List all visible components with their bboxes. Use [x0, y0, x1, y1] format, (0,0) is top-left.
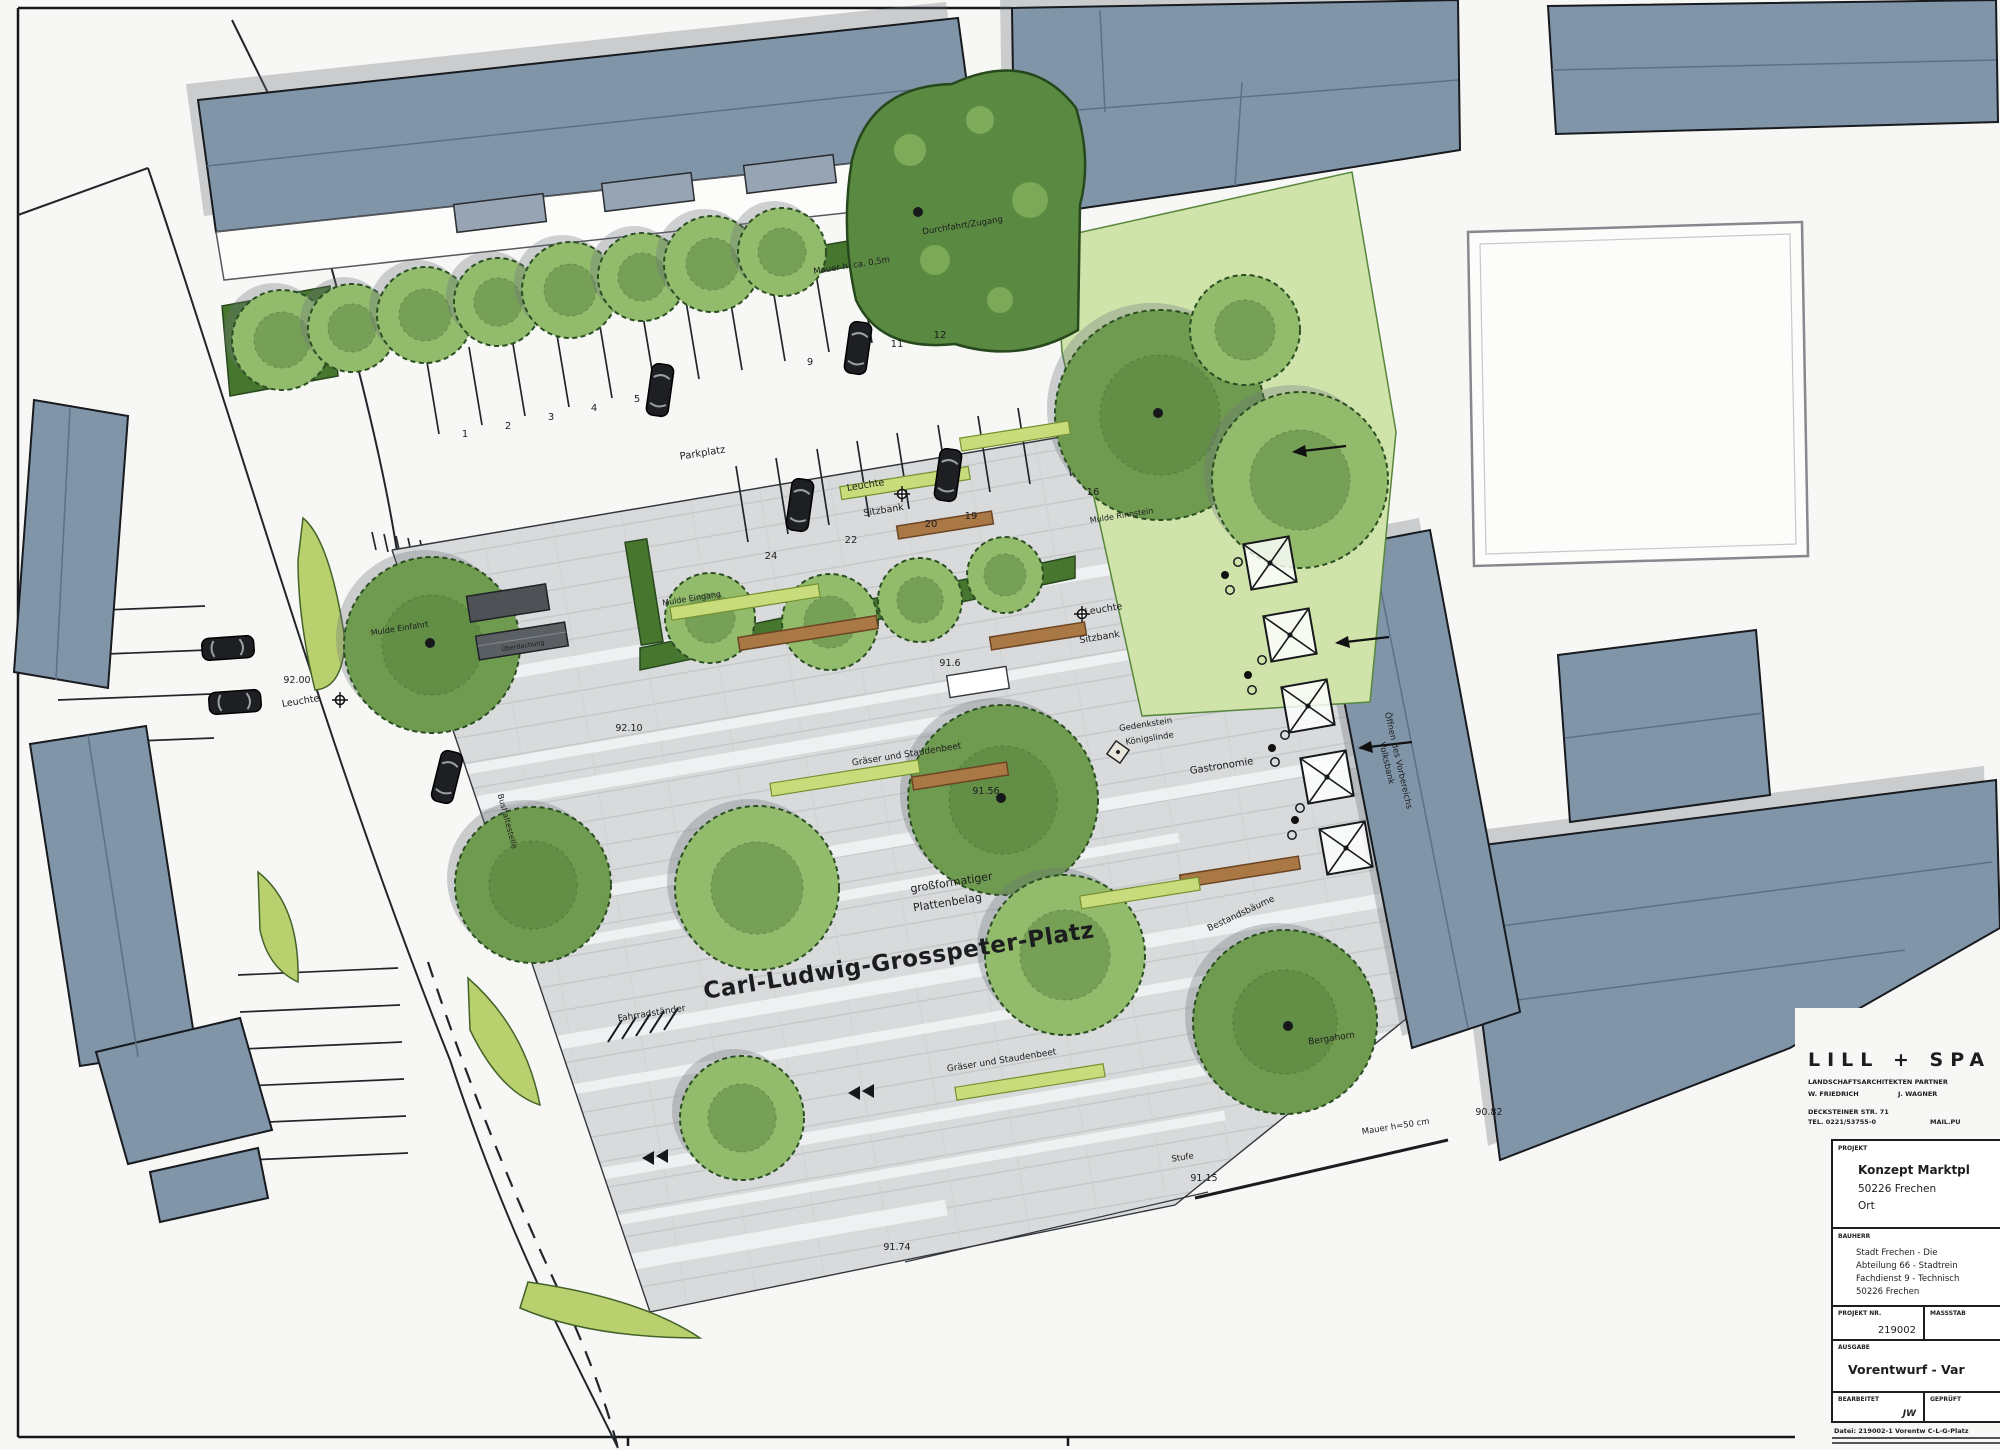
checked-header: GEPRÜFT — [1930, 1396, 1962, 1403]
project-line3: Ort — [1858, 1200, 1875, 1212]
elev-9115: 91.15 — [1190, 1173, 1217, 1184]
file-note: Datei: 219002-1 Vorentw C-L-G-Platz — [1834, 1427, 1969, 1435]
elev-9174: 91.74 — [883, 1242, 910, 1253]
client-line3: Fachdienst 9 - Technisch — [1856, 1274, 1959, 1284]
project-city: 50226 Frechen — [1858, 1183, 1936, 1195]
issue-value: Vorentwurf - Var — [1848, 1362, 1965, 1377]
project-name: Konzept Marktpl — [1858, 1163, 1970, 1177]
partner-left: W. FRIEDRICH — [1808, 1090, 1859, 1098]
drawn-header: BEARBEITET — [1838, 1396, 1880, 1403]
forest-mass — [847, 71, 1085, 352]
svg-text:2: 2 — [505, 421, 511, 432]
svg-text:16: 16 — [1087, 487, 1100, 498]
elev-9200: 92.00 — [283, 675, 310, 686]
building-top-far-right — [1548, 0, 1998, 134]
svg-text:22: 22 — [845, 535, 858, 546]
building-white-right — [1468, 222, 1808, 566]
partner-right: J. WAGNER — [1897, 1090, 1937, 1098]
client-line2: Abteilung 66 - Stadtrein — [1856, 1261, 1958, 1271]
svg-text:9: 9 — [807, 357, 813, 368]
elev-9156: 91.56 — [972, 786, 999, 797]
project-header: PROJEKT — [1838, 1145, 1868, 1152]
svg-text:24: 24 — [765, 551, 778, 562]
elev-9210: 92.10 — [615, 723, 642, 734]
drawn-value: JW — [1901, 1409, 1917, 1419]
svg-text:4: 4 — [591, 403, 597, 414]
svg-text:20: 20 — [925, 519, 938, 530]
svg-text:12: 12 — [934, 330, 947, 341]
scale-header: MASSSTAB — [1930, 1310, 1966, 1317]
projectno-value: 219002 — [1878, 1325, 1916, 1336]
svg-text:19: 19 — [965, 511, 978, 522]
projectno-header: PROJEKT NR. — [1838, 1310, 1881, 1317]
svg-text:11: 11 — [891, 339, 904, 350]
client-line1: Stadt Frechen - Die — [1856, 1248, 1937, 1258]
tree-trunk-dot — [913, 207, 923, 217]
elev-9082: 90.82 — [1475, 1107, 1502, 1118]
firm-type: LANDSCHAFTSARCHITEKTEN PARTNER — [1808, 1078, 1948, 1086]
elev-9160: 91.6 — [939, 658, 960, 669]
issue-header: AUSGABE — [1838, 1344, 1870, 1351]
firm-name: LILL + SPA — [1808, 1049, 1991, 1071]
client-header: BAUHERR — [1838, 1233, 1871, 1240]
firm-address: DECKSTEINER STR. 71 — [1808, 1108, 1889, 1116]
client-line4: 50226 Frechen — [1856, 1287, 1919, 1297]
site-plan-sheet: Balkon Öffnen des Vorbereichs Volksbank — [0, 0, 2000, 1450]
site-plan-drawing: Balkon Öffnen des Vorbereichs Volksbank — [0, 0, 2000, 1450]
firm-mail-fragment: MAIL.PU — [1930, 1118, 1961, 1126]
svg-text:5: 5 — [634, 394, 640, 405]
svg-text:3: 3 — [548, 412, 554, 423]
svg-text:1: 1 — [462, 429, 468, 440]
firm-phone: TEL. 0221/53755-0 — [1808, 1118, 1877, 1126]
